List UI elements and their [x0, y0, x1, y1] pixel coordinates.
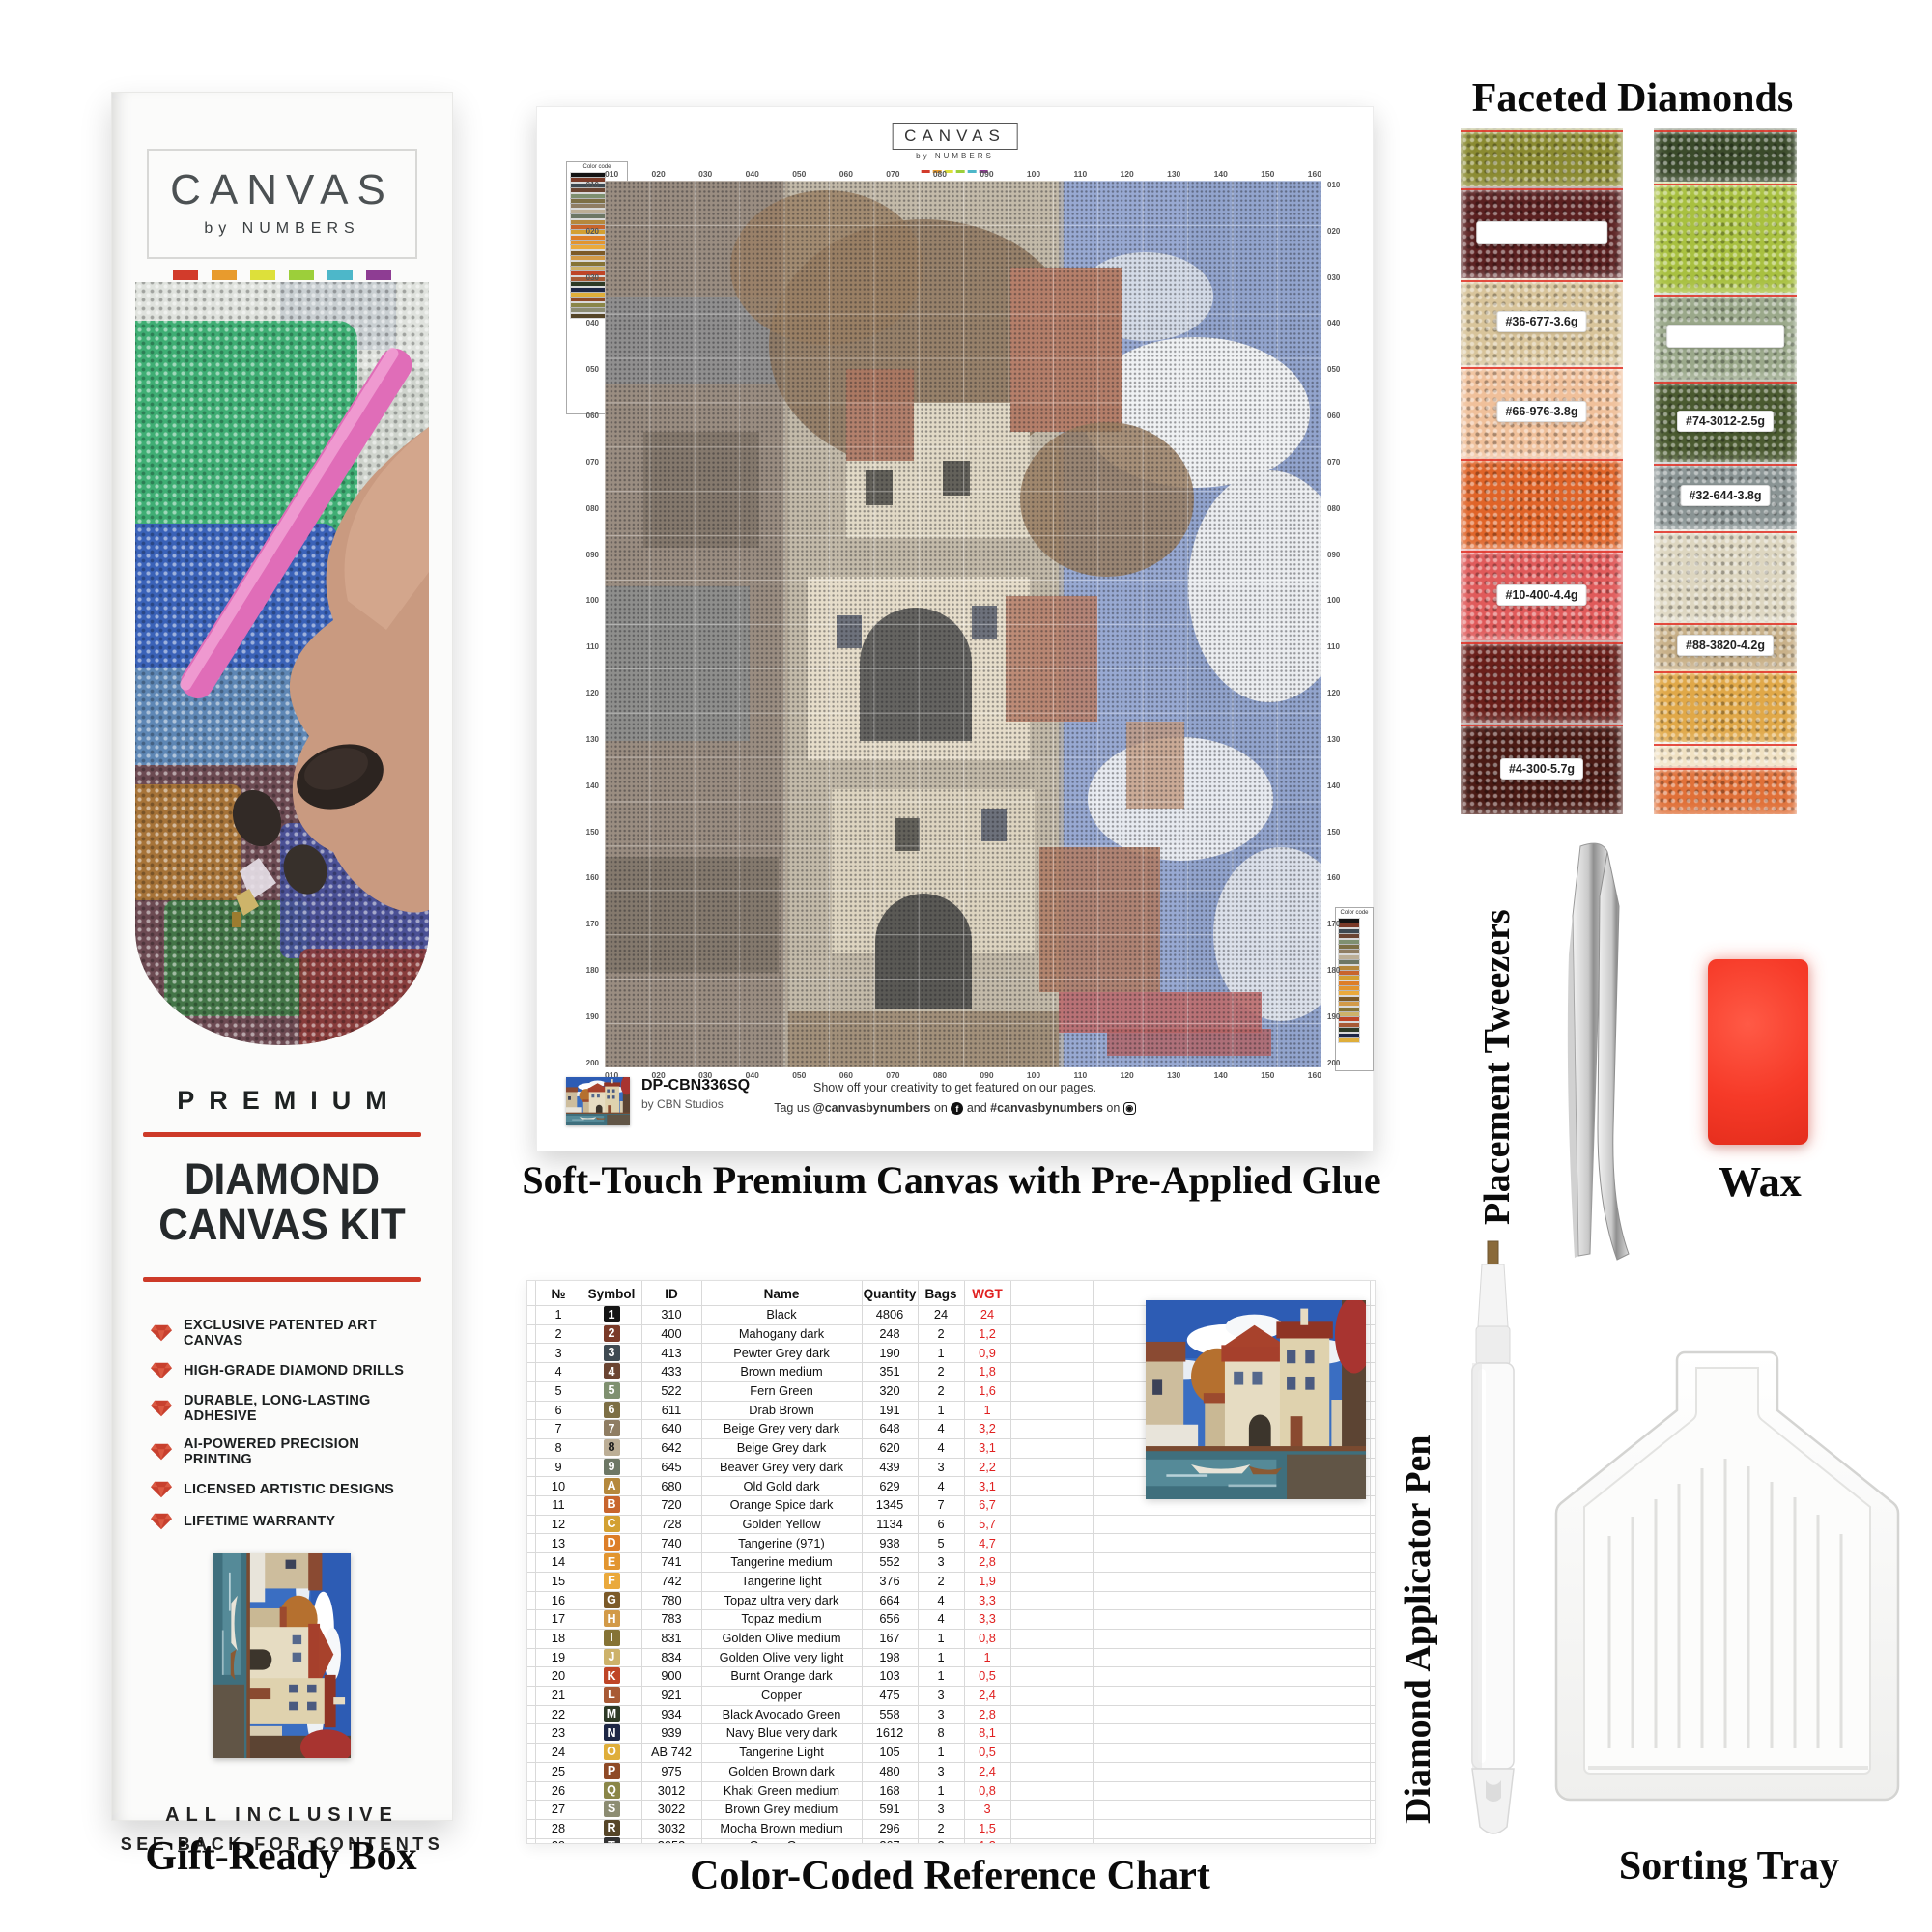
cell-wgt: 2,8 [964, 1554, 1010, 1569]
feature-item: DURABLE, LONG-LASTING ADHESIVE [151, 1393, 431, 1424]
cell-number: 4 [535, 1364, 582, 1378]
table-row: 77640Beige Grey very dark64843,2 [535, 1419, 1010, 1438]
ruler-number: 160 [1308, 169, 1321, 179]
brand-swatch [173, 270, 198, 280]
diamond-bag [1654, 766, 1797, 814]
cell-number: 1 [535, 1307, 582, 1321]
cell-quantity: 648 [862, 1421, 918, 1435]
cell-quantity: 620 [862, 1440, 918, 1455]
ruler-number: 140 [1214, 1070, 1228, 1080]
instagram-icon: ◉ [1123, 1102, 1136, 1115]
ruler-number: 020 [652, 169, 666, 179]
cell-bags: 2 [918, 1383, 964, 1398]
symbol-chip: 4 [604, 1363, 620, 1379]
cell-number: 5 [535, 1383, 582, 1398]
cell-bags: 3 [918, 1688, 964, 1702]
symbol-chip: O [604, 1744, 620, 1760]
brand-logo-frame: CANVAS by NUMBERS [147, 149, 417, 259]
cell-quantity: 190 [862, 1346, 918, 1360]
ruler-number: 080 [1327, 504, 1347, 513]
caption-gift-ready-box: Gift-Ready Box [111, 1833, 451, 1880]
cell-wgt: 1,2 [964, 1326, 1010, 1341]
cell-id: 834 [641, 1650, 701, 1664]
cell-symbol: 2 [582, 1325, 641, 1342]
ruler-number: 060 [839, 169, 853, 179]
diamond-bag: #66-976-3.8g [1461, 365, 1623, 457]
cell-name: Brown Grey medium [701, 1802, 862, 1816]
ruler-right: 0100200300400500600700800901001101201301… [1327, 181, 1347, 1067]
table-row: 11B720Orange Spice dark134576,7 [535, 1495, 1010, 1515]
cell-bags: 4 [918, 1479, 964, 1493]
table-row: 16G780Topaz ultra very dark66443,3 [535, 1590, 1010, 1609]
cell-id: 611 [641, 1403, 701, 1417]
table-row: 25P975Golden Brown dark48032,4 [535, 1762, 1010, 1781]
diamond-icon [151, 1323, 172, 1343]
cell-bags: 4 [918, 1421, 964, 1435]
ruler-number: 100 [1027, 169, 1040, 179]
cell-id: 740 [641, 1536, 701, 1550]
ruler-number: 070 [886, 1070, 899, 1080]
cell-wgt: 6,7 [964, 1497, 1010, 1512]
canvas-logo-subtitle: by NUMBERS [892, 152, 1018, 160]
table-row: 99645Beaver Grey very dark43932,2 [535, 1458, 1010, 1477]
cell-wgt: 1 [964, 1650, 1010, 1664]
cell-number: 23 [535, 1725, 582, 1740]
cell-wgt: 1,5 [964, 1821, 1010, 1835]
ruler-number: 160 [1308, 1070, 1321, 1080]
cell-id: 780 [641, 1593, 701, 1607]
cell-name: Beige Grey dark [701, 1440, 862, 1455]
artwork-image [213, 1553, 351, 1758]
ruler-number: 120 [1121, 169, 1134, 179]
cell-number: 21 [535, 1688, 582, 1702]
cell-symbol: O [582, 1744, 641, 1760]
cell-bags: 3 [918, 1707, 964, 1721]
cell-bags: 8 [918, 1725, 964, 1740]
ruler-number: 130 [1327, 735, 1347, 744]
cell-wgt: 1,9 [964, 1574, 1010, 1588]
symbol-chip: L [604, 1687, 620, 1703]
diamond-bag: #32-644-3.8g [1654, 462, 1797, 529]
ruler-number: 190 [580, 1012, 599, 1021]
ruler-number: 030 [1327, 273, 1347, 282]
cell-number: 6 [535, 1403, 582, 1417]
ruler-top: 0100200300400500600700800901001101201301… [605, 169, 1321, 179]
ruler-number: 170 [580, 920, 599, 928]
cell-bags: 1 [918, 1631, 964, 1645]
cell-id: 3012 [641, 1783, 701, 1798]
cell-id: 831 [641, 1631, 701, 1645]
kit-box: CANVAS by NUMBERS [111, 92, 453, 1821]
ruler-number: 140 [580, 781, 599, 790]
cell-id: AB 742 [641, 1745, 701, 1759]
symbol-chip: 9 [604, 1459, 620, 1475]
cell-quantity: 656 [862, 1611, 918, 1626]
feature-label: LIFETIME WARRANTY [184, 1514, 335, 1529]
ruler-number: 040 [580, 319, 599, 327]
brand-color-swatches [147, 270, 417, 280]
ruler-number: 200 [580, 1059, 599, 1067]
reference-chart: №SymbolIDNameQuantityBagsWGT11310Black48… [526, 1280, 1376, 1844]
cell-symbol: E [582, 1553, 641, 1570]
cell-symbol: J [582, 1649, 641, 1665]
canvas-logo-title: CANVAS [892, 123, 1018, 150]
ruler-number: 180 [580, 966, 599, 975]
table-row: 21L921Copper47532,4 [535, 1686, 1010, 1705]
cell-name: Tangerine light [701, 1574, 862, 1588]
header-cell: ID [641, 1287, 701, 1301]
ruler-number: 110 [580, 642, 599, 651]
table-header-row: №SymbolIDNameQuantityBagsWGT [535, 1283, 1010, 1305]
diamond-bag [1654, 128, 1797, 182]
box-title: DIAMOND CANVAS KIT [123, 1157, 442, 1248]
symbol-chip: P [604, 1763, 620, 1779]
cell-id: 413 [641, 1346, 701, 1360]
ruler-number: 080 [933, 1070, 947, 1080]
cell-quantity: 439 [862, 1460, 918, 1474]
bag-label [1666, 325, 1784, 348]
cell-id: 680 [641, 1479, 701, 1493]
cell-id: 645 [641, 1460, 701, 1474]
table-row: 19J834Golden Olive very light19811 [535, 1647, 1010, 1666]
applicator-pen-image [1455, 1239, 1532, 1843]
ruler-number: 090 [980, 169, 993, 179]
cell-id: 921 [641, 1688, 701, 1702]
cell-symbol: N [582, 1724, 641, 1741]
ruler-number: 060 [580, 412, 599, 420]
caption-sorting-tray: Sorting Tray [1546, 1843, 1913, 1889]
diamond-icon [151, 1361, 172, 1380]
cell-wgt: 0,5 [964, 1668, 1010, 1683]
ruler-number: 110 [1327, 642, 1347, 651]
cell-name: Topaz medium [701, 1611, 862, 1626]
symbol-chip: B [604, 1496, 620, 1513]
brand-logo: CANVAS by NUMBERS [147, 149, 417, 280]
symbol-chip: 1 [604, 1306, 620, 1322]
cell-wgt: 1,3 [964, 1838, 1010, 1844]
symbol-chip: E [604, 1553, 620, 1570]
ruler-number: 070 [1327, 458, 1347, 467]
cell-wgt: 0,8 [964, 1631, 1010, 1645]
cell-bags: 4 [918, 1593, 964, 1607]
cell-number: 28 [535, 1821, 582, 1835]
diamond-bag [1654, 669, 1797, 742]
cell-bags: 3 [918, 1460, 964, 1474]
ruler-number: 080 [933, 169, 947, 179]
feature-list: EXCLUSIVE PATENTED ART CANVASHIGH-GRADE … [151, 1318, 431, 1544]
ruler-number: 150 [580, 828, 599, 837]
cell-name: Black Avocado Green [701, 1707, 862, 1721]
box-title-line2: CANVAS KIT [123, 1203, 442, 1248]
bag-label: #10-400-4.4g [1496, 584, 1586, 606]
ruler-number: 060 [839, 1070, 853, 1080]
symbol-chip: A [604, 1478, 620, 1494]
ruler-number: 050 [580, 365, 599, 374]
cell-quantity: 475 [862, 1688, 918, 1702]
cell-wgt: 2,2 [964, 1460, 1010, 1474]
cell-wgt: 1 [964, 1403, 1010, 1417]
cell-bags: 2 [918, 1326, 964, 1341]
ruler-number: 190 [1327, 1012, 1347, 1021]
table-row: 15F742Tangerine light37621,9 [535, 1572, 1010, 1591]
cell-id: 728 [641, 1517, 701, 1531]
cell-number: 7 [535, 1421, 582, 1435]
symbol-chip: H [604, 1610, 620, 1627]
cell-bags: 1 [918, 1668, 964, 1683]
cell-name: Golden Olive medium [701, 1631, 862, 1645]
ruler-number: 020 [580, 227, 599, 236]
table-row: 24OAB 742Tangerine Light10510,5 [535, 1743, 1010, 1762]
cell-quantity: 1134 [862, 1517, 918, 1531]
sorting-tray-image [1542, 1343, 1914, 1826]
diamond-bag [1654, 742, 1797, 766]
brand-swatch [289, 270, 314, 280]
feature-item: LIFETIME WARRANTY [151, 1512, 431, 1531]
ruler-number: 160 [1327, 873, 1347, 882]
table-row: 29T3052Green Grey26721,3 [535, 1837, 1010, 1844]
ruler-number: 180 [1327, 966, 1347, 975]
cell-number: 19 [535, 1650, 582, 1664]
cell-bags: 7 [918, 1497, 964, 1512]
social-on: on [1103, 1101, 1123, 1115]
symbol-chip: Q [604, 1782, 620, 1799]
diamond-bag [1461, 457, 1623, 549]
cell-name: Black [701, 1307, 862, 1321]
feature-item: LICENSED ARTISTIC DESIGNS [151, 1480, 431, 1499]
ruler-number: 050 [792, 1070, 806, 1080]
brand-swatch [366, 270, 391, 280]
cell-id: 642 [641, 1440, 701, 1455]
chart-table: №SymbolIDNameQuantityBagsWGT11310Black48… [535, 1283, 1010, 1844]
cell-wgt: 0,5 [964, 1745, 1010, 1759]
bag-label [1476, 221, 1607, 244]
cell-name: Brown medium [701, 1364, 862, 1378]
feature-label: AI-POWERED PRECISION PRINTING [184, 1436, 431, 1467]
feature-label: LICENSED ARTISTIC DESIGNS [184, 1482, 394, 1497]
label-applicator-pen: Diamond Applicator Pen [1397, 1412, 1439, 1847]
cell-number: 14 [535, 1554, 582, 1569]
cell-symbol: 6 [582, 1402, 641, 1418]
header-cell: Quantity [862, 1287, 918, 1301]
table-row: 22M934Black Avocado Green55832,8 [535, 1704, 1010, 1723]
social-prefix: Tag us [774, 1101, 812, 1115]
cell-wgt: 2,8 [964, 1707, 1010, 1721]
ruler-number: 050 [792, 169, 806, 179]
cell-number: 9 [535, 1460, 582, 1474]
ruler-number: 100 [580, 596, 599, 605]
cell-number: 3 [535, 1346, 582, 1360]
cell-id: 522 [641, 1383, 701, 1398]
cell-symbol: I [582, 1630, 641, 1646]
cell-wgt: 1,8 [964, 1364, 1010, 1378]
label-placement-tweezers: Placement Tweezers [1476, 884, 1519, 1251]
box-artwork-thumbnail [213, 1553, 351, 1758]
ruler-number: 130 [580, 735, 599, 744]
table-row: 17H783Topaz medium65643,3 [535, 1609, 1010, 1629]
bag-label: #66-976-3.8g [1496, 401, 1586, 422]
table-row: 20K900Burnt Orange dark10310,5 [535, 1666, 1010, 1686]
cell-id: 783 [641, 1611, 701, 1626]
cell-bags: 5 [918, 1536, 964, 1550]
table-row: 14E741Tangerine medium55232,8 [535, 1552, 1010, 1572]
cell-name: Golden Brown dark [701, 1764, 862, 1778]
cell-symbol: 3 [582, 1345, 641, 1361]
cell-wgt: 8,1 [964, 1725, 1010, 1740]
cell-quantity: 103 [862, 1668, 918, 1683]
cell-quantity: 248 [862, 1326, 918, 1341]
ruler-left: 0100200300400500600700800901001101201301… [580, 181, 599, 1067]
bag-label: #4-300-5.7g [1500, 758, 1583, 780]
brand-title: CANVAS [155, 166, 410, 214]
caption-faceted-diamonds: Faceted Diamonds [1430, 75, 1835, 122]
cell-quantity: 105 [862, 1745, 918, 1759]
table-row: 33413Pewter Grey dark19010,9 [535, 1343, 1010, 1362]
cell-id: 3022 [641, 1802, 701, 1816]
cell-number: 2 [535, 1326, 582, 1341]
diamond-icon [151, 1399, 172, 1418]
cell-wgt: 3,3 [964, 1611, 1010, 1626]
diamond-bag [1461, 640, 1623, 723]
cell-wgt: 3,1 [964, 1440, 1010, 1455]
cell-bags: 3 [918, 1764, 964, 1778]
diamond-bag: #10-400-4.4g [1461, 549, 1623, 640]
cell-number: 10 [535, 1479, 582, 1493]
cell-symbol: 8 [582, 1439, 641, 1456]
diamond-bag [1654, 293, 1797, 380]
header-cell: Symbol [582, 1287, 641, 1301]
grid-vline [1093, 1281, 1094, 1843]
bag-label: #32-644-3.8g [1680, 485, 1770, 506]
table-row: 66611Drab Brown19111 [535, 1400, 1010, 1419]
cell-quantity: 552 [862, 1554, 918, 1569]
cell-symbol: 4 [582, 1363, 641, 1379]
ruler-number: 140 [1327, 781, 1347, 790]
header-cell: Bags [918, 1287, 964, 1301]
cell-id: 939 [641, 1725, 701, 1740]
diamond-bag [1654, 529, 1797, 621]
cell-quantity: 167 [862, 1631, 918, 1645]
cell-wgt: 2,4 [964, 1688, 1010, 1702]
box-title-line1: DIAMOND [123, 1157, 442, 1203]
cell-name: Tangerine Light [701, 1745, 862, 1759]
cell-wgt: 24 [964, 1307, 1010, 1321]
table-row: 88642Beige Grey dark62043,1 [535, 1438, 1010, 1458]
hand-with-pen [135, 282, 429, 1045]
cell-quantity: 191 [862, 1403, 918, 1417]
header-cell: № [535, 1287, 582, 1301]
cell-name: Golden Olive very light [701, 1650, 862, 1664]
diamond-icon [151, 1512, 172, 1531]
social-line1: Show off your creativity to get featured… [537, 1081, 1373, 1094]
symbol-chip: D [604, 1535, 620, 1551]
cell-number: 29 [535, 1838, 582, 1844]
cell-name: Khaki Green medium [701, 1783, 862, 1798]
brand-swatch [250, 270, 275, 280]
grid-vline [1010, 1281, 1011, 1843]
cell-quantity: 168 [862, 1783, 918, 1798]
feature-label: EXCLUSIVE PATENTED ART CANVAS [184, 1318, 431, 1349]
cell-id: 3052 [641, 1838, 701, 1844]
cell-wgt: 2,4 [964, 1764, 1010, 1778]
cell-bags: 1 [918, 1403, 964, 1417]
ruler-number: 140 [1214, 169, 1228, 179]
cell-id: 310 [641, 1307, 701, 1321]
cell-quantity: 1345 [862, 1497, 918, 1512]
cell-id: 742 [641, 1574, 701, 1588]
cell-number: 15 [535, 1574, 582, 1588]
symbol-chip: T [604, 1837, 620, 1844]
cell-bags: 2 [918, 1821, 964, 1835]
cell-number: 22 [535, 1707, 582, 1721]
cell-id: 3032 [641, 1821, 701, 1835]
ruler-number: 050 [1327, 365, 1347, 374]
cell-name: Old Gold dark [701, 1479, 862, 1493]
tweezers-image [1544, 838, 1650, 1264]
ruler-number: 010 [605, 169, 618, 179]
cell-bags: 2 [918, 1364, 964, 1378]
cell-symbol: 5 [582, 1382, 641, 1399]
cell-number: 17 [535, 1611, 582, 1626]
cell-symbol: B [582, 1496, 641, 1513]
ruler-number: 150 [1327, 828, 1347, 837]
cell-wgt: 0,8 [964, 1783, 1010, 1798]
ruler-number: 110 [1073, 1070, 1087, 1080]
cell-bags: 4 [918, 1440, 964, 1455]
premium-label: PREMIUM [112, 1086, 452, 1116]
ruler-number: 100 [1327, 596, 1347, 605]
cell-quantity: 558 [862, 1707, 918, 1721]
diamond-bag: #74-3012-2.5g [1654, 380, 1797, 462]
table-row: 55522Fern Green32021,6 [535, 1381, 1010, 1401]
ruler-number: 030 [580, 273, 599, 282]
cell-bags: 1 [918, 1745, 964, 1759]
ruler-number: 040 [1327, 319, 1347, 327]
cell-bags: 6 [918, 1517, 964, 1531]
caption-reference-chart: Color-Coded Reference Chart [526, 1853, 1374, 1899]
cell-id: 400 [641, 1326, 701, 1341]
cell-symbol: D [582, 1535, 641, 1551]
ruler-number: 090 [980, 1070, 993, 1080]
diamond-icon [151, 1480, 172, 1499]
ruler-number: 020 [1327, 227, 1347, 236]
cell-bags: 2 [918, 1574, 964, 1588]
social-on: on [931, 1101, 952, 1115]
cell-quantity: 351 [862, 1364, 918, 1378]
symbol-chip: N [604, 1724, 620, 1741]
diamond-bag: #88-3820-4.2g [1654, 621, 1797, 669]
symbol-chip: 3 [604, 1345, 620, 1361]
brand-swatch [212, 270, 237, 280]
red-divider-bottom [143, 1277, 421, 1282]
cell-number: 20 [535, 1668, 582, 1683]
cell-number: 24 [535, 1745, 582, 1759]
ruler-number: 150 [1261, 169, 1274, 179]
diamond-bag [1461, 128, 1623, 186]
box-photo [135, 282, 429, 1045]
cell-number: 13 [535, 1536, 582, 1550]
cell-name: Drab Brown [701, 1403, 862, 1417]
ruler-number: 070 [580, 458, 599, 467]
bag-label: #36-677-3.6g [1496, 311, 1586, 332]
product-collage: CANVAS by NUMBERS [0, 0, 1932, 1932]
cell-name: Beaver Grey very dark [701, 1460, 862, 1474]
cell-quantity: 664 [862, 1593, 918, 1607]
diamond-bag: #36-677-3.6g [1461, 278, 1623, 365]
cell-id: 640 [641, 1421, 701, 1435]
ruler-number: 010 [1327, 181, 1347, 189]
cell-wgt: 3,3 [964, 1593, 1010, 1607]
cell-quantity: 938 [862, 1536, 918, 1550]
